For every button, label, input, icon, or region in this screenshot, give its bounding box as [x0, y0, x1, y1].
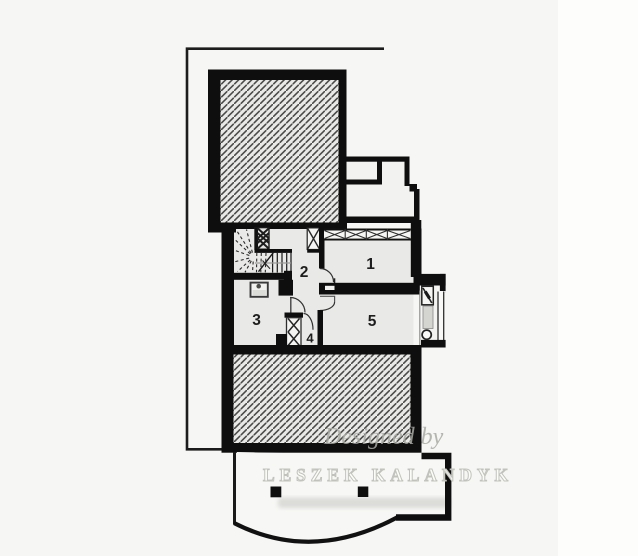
svg-text:LESZEK KALANDYK: LESZEK KALANDYK: [263, 465, 513, 485]
svg-text:Designed by: Designed by: [323, 424, 444, 450]
svg-text:2: 2: [300, 264, 309, 281]
svg-text:3: 3: [252, 312, 261, 329]
svg-text:1: 1: [366, 256, 375, 273]
svg-text:5: 5: [368, 313, 377, 330]
svg-text:4: 4: [306, 331, 314, 346]
